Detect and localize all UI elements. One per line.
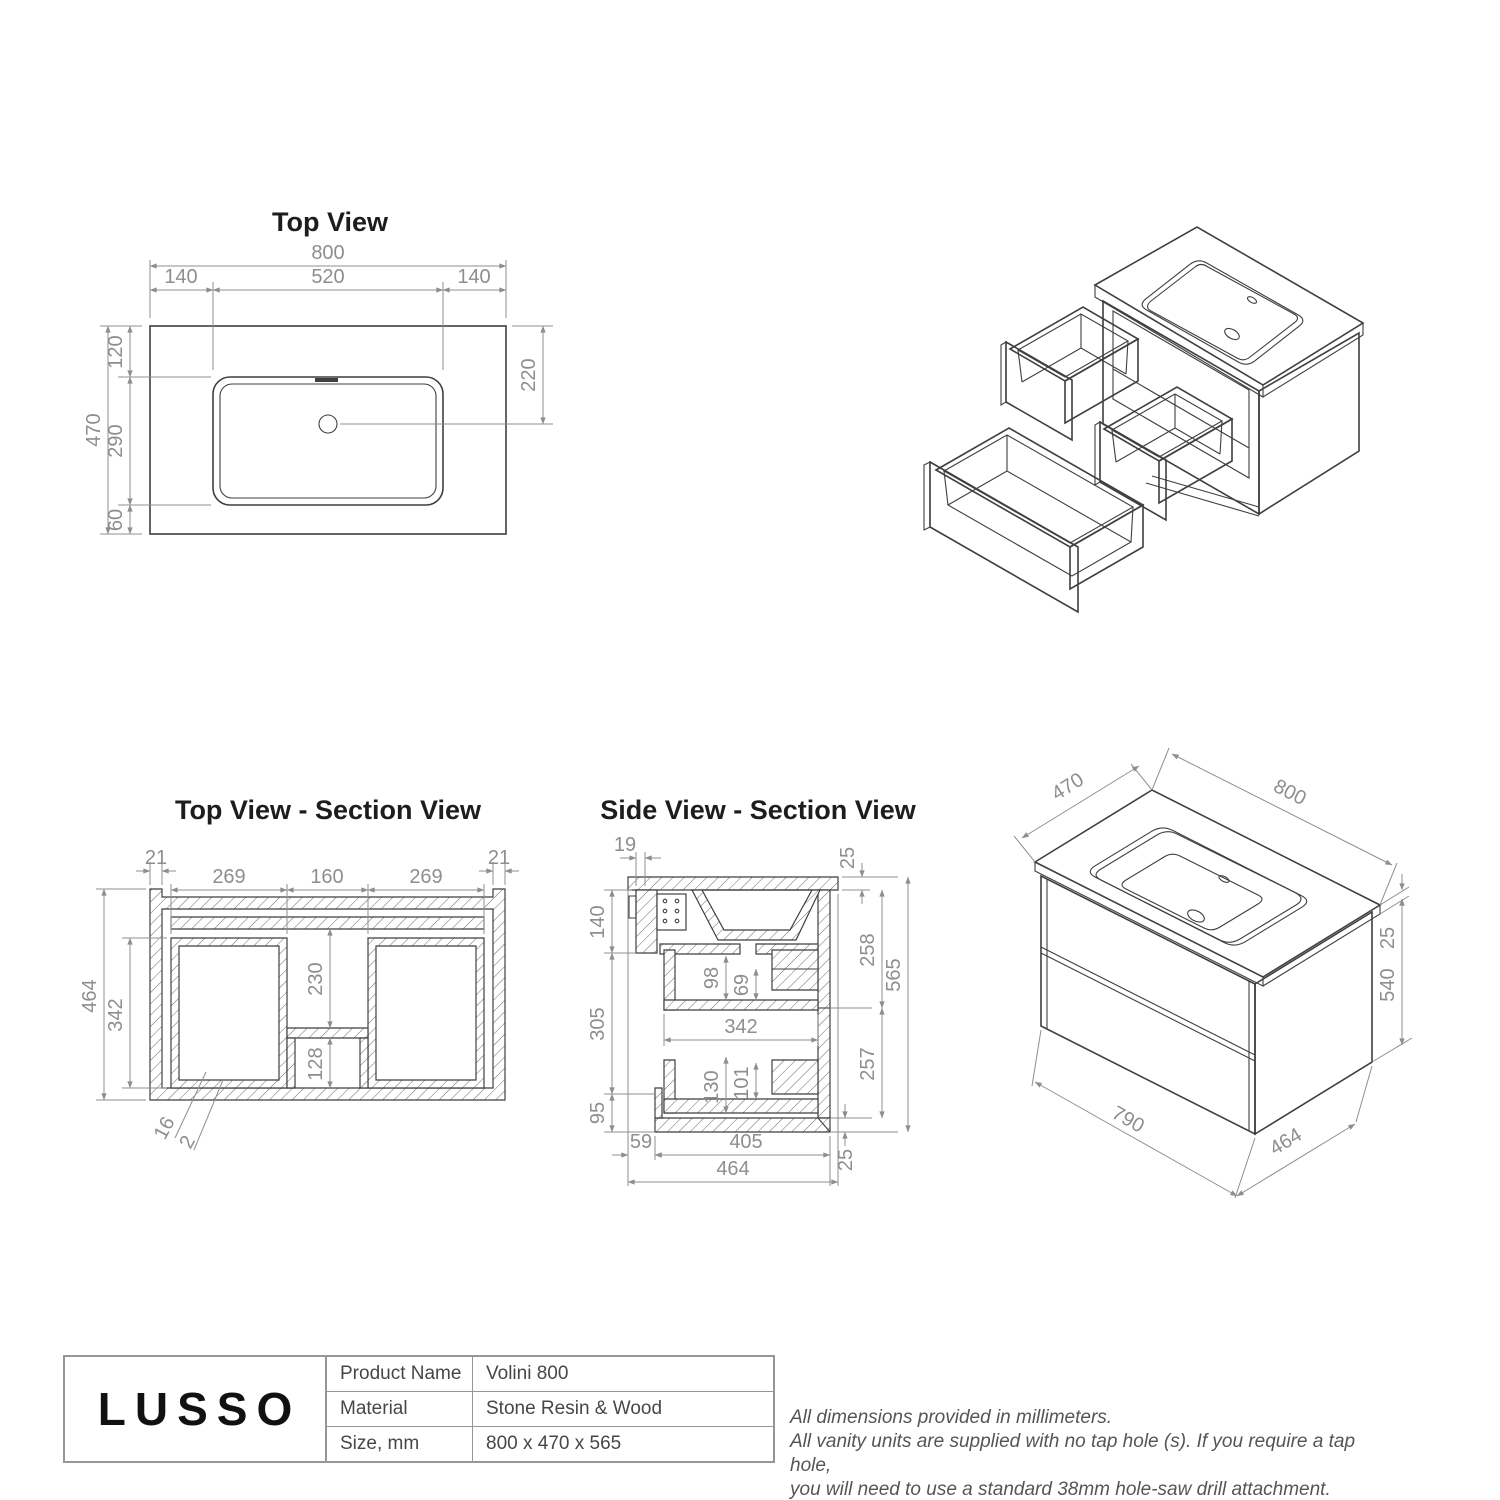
dim-160: 160 [310, 866, 343, 888]
top-view-extension-lines [100, 260, 553, 534]
iso-cabinet [1095, 227, 1363, 516]
hanging-hook [629, 896, 636, 918]
notes: All dimensions provided in millimeters. … [790, 1406, 1390, 1500]
dim-342-side: 342 [724, 1016, 757, 1038]
dim-140-side: 140 [587, 905, 609, 938]
top-view-drawing: Top View 800 140 520 140 470 120 290 [83, 207, 553, 534]
dim-iso-470: 470 [1048, 769, 1088, 805]
dim-470: 470 [83, 413, 105, 446]
dim-101: 101 [731, 1066, 753, 1099]
dim-220: 220 [518, 358, 540, 391]
material-label: Material [327, 1392, 473, 1426]
dim-230: 230 [305, 962, 327, 995]
countertop-outline [150, 326, 506, 534]
size-label: Size, mm [327, 1427, 473, 1461]
lusso-logo: LUSSO [89, 1382, 301, 1436]
pocket-walls-section [287, 1038, 368, 1088]
dim-25-bottom: 25 [835, 1149, 857, 1171]
iso-drawer-box-3 [924, 428, 1143, 612]
countertop-section [628, 877, 838, 890]
dim-140-right: 140 [457, 266, 490, 288]
logo-cell: LUSSO [65, 1357, 327, 1461]
iso-overflow [1246, 295, 1257, 304]
drawing-svg: Top View 800 140 520 140 470 120 290 [0, 0, 1500, 1500]
dim-60: 60 [105, 509, 127, 531]
dim-257: 257 [857, 1047, 879, 1080]
material-value: Stone Resin & Wood [473, 1392, 773, 1426]
top-section-title: Top View - Section View [175, 795, 482, 825]
back-rail-wall [636, 890, 657, 953]
dim-405: 405 [729, 1131, 762, 1153]
dim-565: 565 [883, 958, 905, 991]
iso-drawer-box-1 [1001, 307, 1138, 440]
dim-69: 69 [731, 974, 753, 996]
dim-464-side: 464 [716, 1158, 749, 1180]
base-foot-section [655, 1088, 662, 1118]
dim-16: 16 [150, 1113, 180, 1143]
channel-strip-section [287, 1028, 368, 1038]
top-view-title: Top View [272, 207, 389, 237]
product-name-value: Volini 800 [473, 1357, 773, 1391]
product-name-label: Product Name [327, 1357, 473, 1391]
title-block: LUSSO Product Name Volini 800 Material S… [63, 1355, 775, 1463]
top-view-dimensions: 800 140 520 140 470 120 290 60 220 [83, 242, 543, 534]
size-value: 800 x 470 x 565 [473, 1427, 773, 1461]
dim-95: 95 [587, 1102, 609, 1124]
iso2-waste-hole [1186, 907, 1207, 924]
iso-extension-lines [1014, 748, 1412, 1198]
dim-25-top: 25 [837, 847, 859, 869]
top-section-dimensions: 21 21 269 160 269 464 342 230 128 16 2 [79, 847, 519, 1152]
dim-130: 130 [701, 1070, 723, 1103]
dim-269-left: 269 [212, 866, 245, 888]
dim-iso-800: 800 [1270, 775, 1310, 810]
note-line-3: you will need to use a standard 38mm hol… [790, 1478, 1390, 1500]
left-bay-section [171, 938, 287, 1088]
dim-iso-25: 25 [1377, 927, 1399, 949]
dim-269-right: 269 [409, 866, 442, 888]
top-section-drawing: Top View - Section View 21 21 269 160 26… [79, 795, 519, 1152]
dim-140-left: 140 [164, 266, 197, 288]
side-section-drawing: Side View - Section View [587, 795, 917, 1186]
technical-drawing-sheet: Top View 800 140 520 140 470 120 290 [0, 0, 1500, 1500]
dim-305: 305 [587, 1007, 609, 1040]
table-row: Material Stone Resin & Wood [327, 1392, 773, 1427]
waste-hole [319, 415, 337, 433]
dim-2: 2 [175, 1132, 200, 1152]
note-line-1: All dimensions provided in millimeters. [790, 1406, 1390, 1430]
title-block-rows: Product Name Volini 800 Material Stone R… [327, 1357, 773, 1461]
right-bay-section [368, 938, 484, 1088]
basin-bowl-section [692, 890, 820, 940]
iso-waste-hole [1223, 326, 1241, 342]
table-row: Size, mm 800 x 470 x 565 [327, 1427, 773, 1461]
dim-258: 258 [857, 933, 879, 966]
dim-21-right: 21 [488, 847, 510, 869]
side-section-title: Side View - Section View [600, 795, 917, 825]
exploded-isometric-drawing [924, 227, 1363, 612]
front-panel-section [818, 890, 830, 1118]
wall-bracket [657, 894, 686, 930]
basin-inner-rim [220, 384, 436, 498]
table-row: Product Name Volini 800 [327, 1357, 773, 1392]
dim-128: 128 [305, 1047, 327, 1080]
dim-19: 19 [614, 834, 636, 856]
dim-iso-540: 540 [1377, 968, 1399, 1001]
iso2-overflow [1218, 874, 1230, 883]
dim-98: 98 [701, 967, 723, 989]
dim-520: 520 [311, 266, 344, 288]
dimensioned-isometric-drawing: 470 800 25 540 790 464 [1014, 748, 1412, 1198]
dim-342: 342 [105, 998, 127, 1031]
basin-outer-rim [213, 377, 443, 505]
iso-drawer-box-2 [1095, 387, 1232, 520]
dim-800: 800 [311, 242, 344, 264]
dim-iso-464: 464 [1266, 1124, 1306, 1160]
dim-59: 59 [630, 1131, 652, 1153]
base-panel-section [655, 1118, 830, 1132]
back-rail-section [171, 917, 484, 929]
dim-120: 120 [105, 335, 127, 368]
dim-290: 290 [105, 424, 127, 457]
dim-21-left: 21 [145, 847, 167, 869]
dim-464: 464 [79, 979, 101, 1012]
dim-iso-790: 790 [1108, 1102, 1148, 1137]
note-line-2: All vanity units are supplied with no ta… [790, 1430, 1390, 1478]
